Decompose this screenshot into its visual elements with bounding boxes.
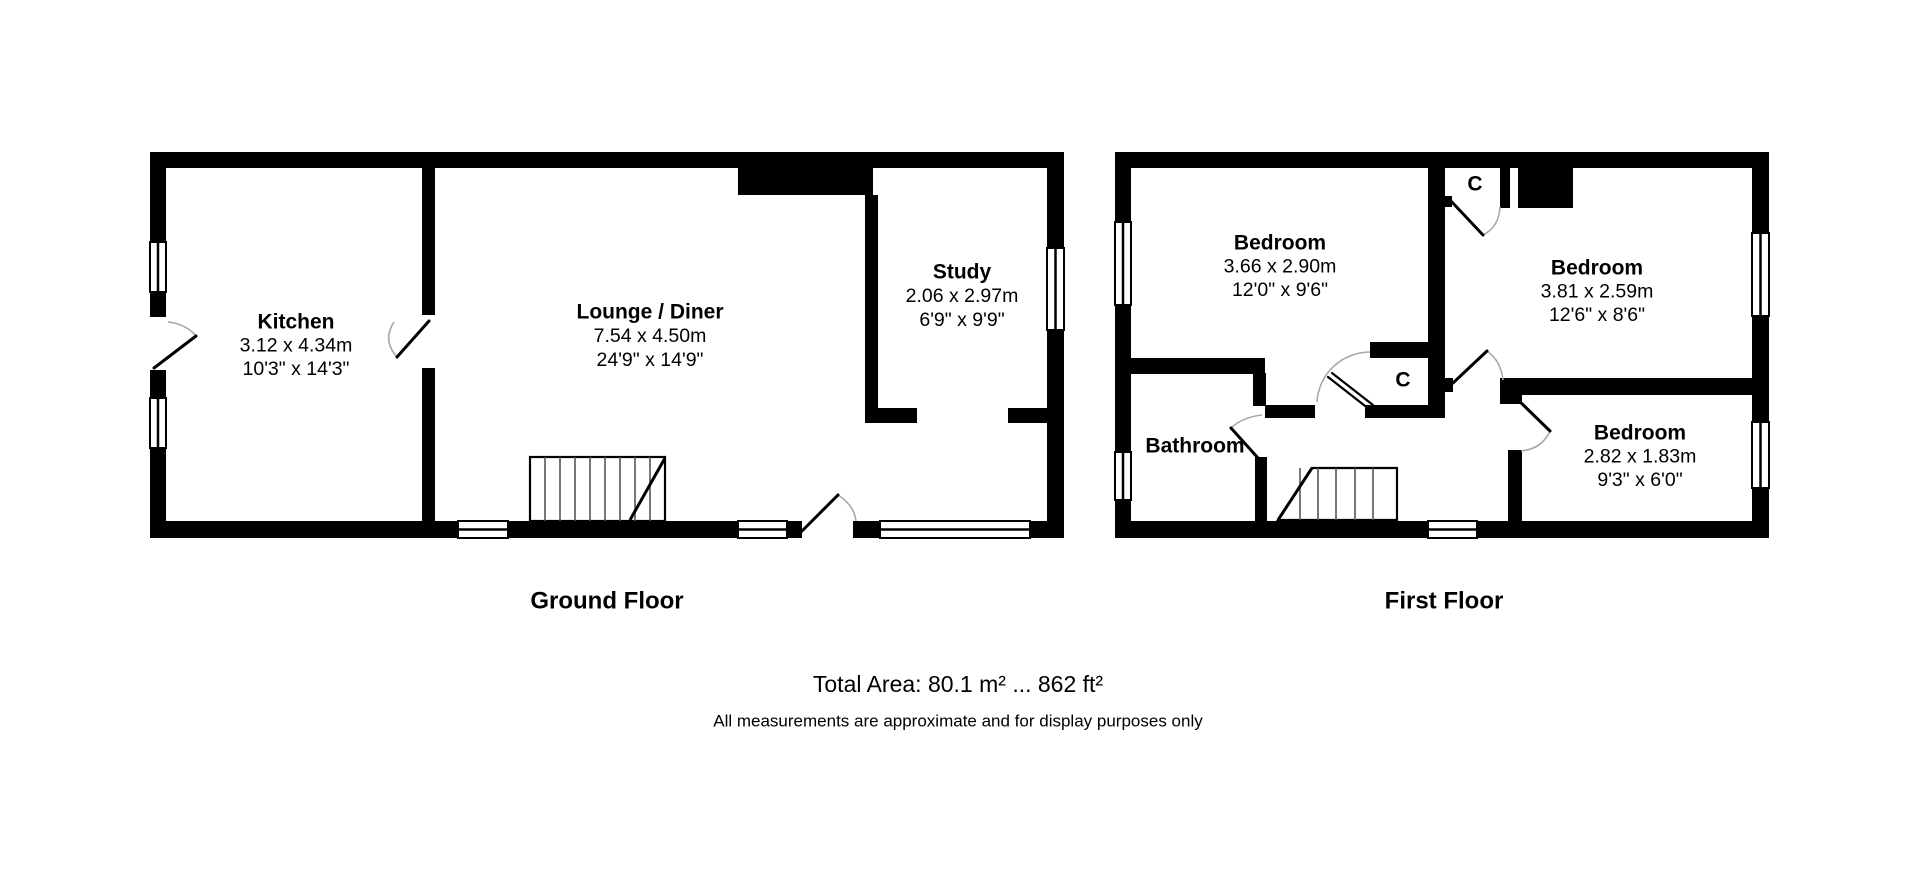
- lounge-metric: 7.54 x 4.50m: [594, 325, 707, 347]
- gf-window-bottom-right: [880, 521, 1030, 538]
- gf-wall-study-stub-right: [1008, 408, 1047, 423]
- study-metric: 2.06 x 2.97m: [906, 285, 1019, 307]
- ff-window-bottom: [1428, 521, 1477, 538]
- ff-wall-closet-bottom: [1365, 405, 1445, 418]
- gf-window-study-right: [1047, 248, 1064, 330]
- ff-wall-top: [1115, 152, 1769, 168]
- ff-window-bedroom2-right: [1752, 233, 1769, 316]
- gf-stairs: [530, 457, 665, 521]
- gf-wall-study-stub-left: [865, 408, 917, 423]
- gf-wall-right: [1047, 152, 1064, 538]
- bedroom1-name: Bedroom: [1234, 232, 1326, 255]
- kitchen-metric: 3.12 x 4.34m: [240, 335, 353, 357]
- ff-wall-closet-top: [1370, 342, 1430, 358]
- gf-wall-study: [865, 195, 878, 422]
- gf-window-kitchen-upper: [150, 242, 166, 292]
- bedroom1-metric: 3.66 x 2.90m: [1224, 256, 1337, 278]
- lounge-imperial: 24'9" x 14'9": [597, 349, 704, 371]
- bedroom2-metric: 3.81 x 2.59m: [1541, 281, 1654, 303]
- bedroom3-metric: 2.82 x 1.83m: [1584, 446, 1697, 468]
- bedroom1-imperial: 12'0" x 9'6": [1232, 279, 1328, 301]
- gf-window-kitchen-lower: [150, 398, 166, 448]
- gf-wall-kitchen-lower: [422, 368, 435, 521]
- ff-wall-bedroom2-bottom: [1500, 378, 1752, 395]
- ff-closet-top-right-wall: [1500, 167, 1510, 208]
- ff-bedroom2-door-post: [1443, 378, 1453, 392]
- ff-wall-bathroom-right-lower: [1255, 457, 1267, 521]
- ff-window-bedroom1-left: [1115, 222, 1131, 305]
- ff-wall-bathroom-right-upper: [1253, 373, 1266, 406]
- study-imperial: 6'9" x 9'9": [919, 309, 1004, 331]
- kitchen-name: Kitchen: [257, 311, 334, 334]
- ff-wall-bedroom3-left: [1508, 450, 1522, 521]
- closet-top-label: C: [1467, 173, 1482, 196]
- ff-window-bedroom3-right: [1752, 422, 1769, 488]
- lounge-name: Lounge / Diner: [577, 301, 724, 324]
- gf-chimney-breast: [738, 152, 873, 195]
- disclaimer-text: All measurements are approximate and for…: [713, 712, 1203, 731]
- bedroom2-imperial: 12'6" x 8'6": [1549, 304, 1645, 326]
- ff-wall-bedroom1-right: [1428, 168, 1445, 416]
- ff-chimney-breast: [1518, 152, 1573, 208]
- total-area-text: Total Area: 80.1 m² ... 862 ft²: [813, 671, 1104, 697]
- floorplan-image: Kitchen 3.12 x 4.34m 10'3" x 14'3" Loung…: [0, 0, 1920, 884]
- ground-floor-title: Ground Floor: [530, 588, 683, 615]
- closet-mid-label: C: [1395, 369, 1410, 392]
- bedroom2-name: Bedroom: [1551, 257, 1643, 280]
- first-floor-title: First Floor: [1385, 588, 1504, 615]
- study-name: Study: [933, 261, 992, 284]
- bedroom3-name: Bedroom: [1594, 422, 1686, 445]
- gf-wall-kitchen-upper: [422, 168, 435, 315]
- kitchen-imperial: 10'3" x 14'3": [243, 358, 350, 380]
- gf-window-bottom-left: [458, 521, 508, 538]
- ff-wall-bathroom-top: [1131, 358, 1265, 374]
- bedroom3-imperial: 9'3" x 6'0": [1597, 469, 1682, 491]
- stair-outline: [530, 457, 665, 521]
- gf-wall-top: [150, 152, 1064, 168]
- ff-window-bathroom-left: [1115, 452, 1131, 500]
- ff-wall-landing-stub: [1265, 405, 1315, 418]
- bathroom-name: Bathroom: [1145, 435, 1244, 458]
- gf-window-bottom-middle: [738, 521, 787, 538]
